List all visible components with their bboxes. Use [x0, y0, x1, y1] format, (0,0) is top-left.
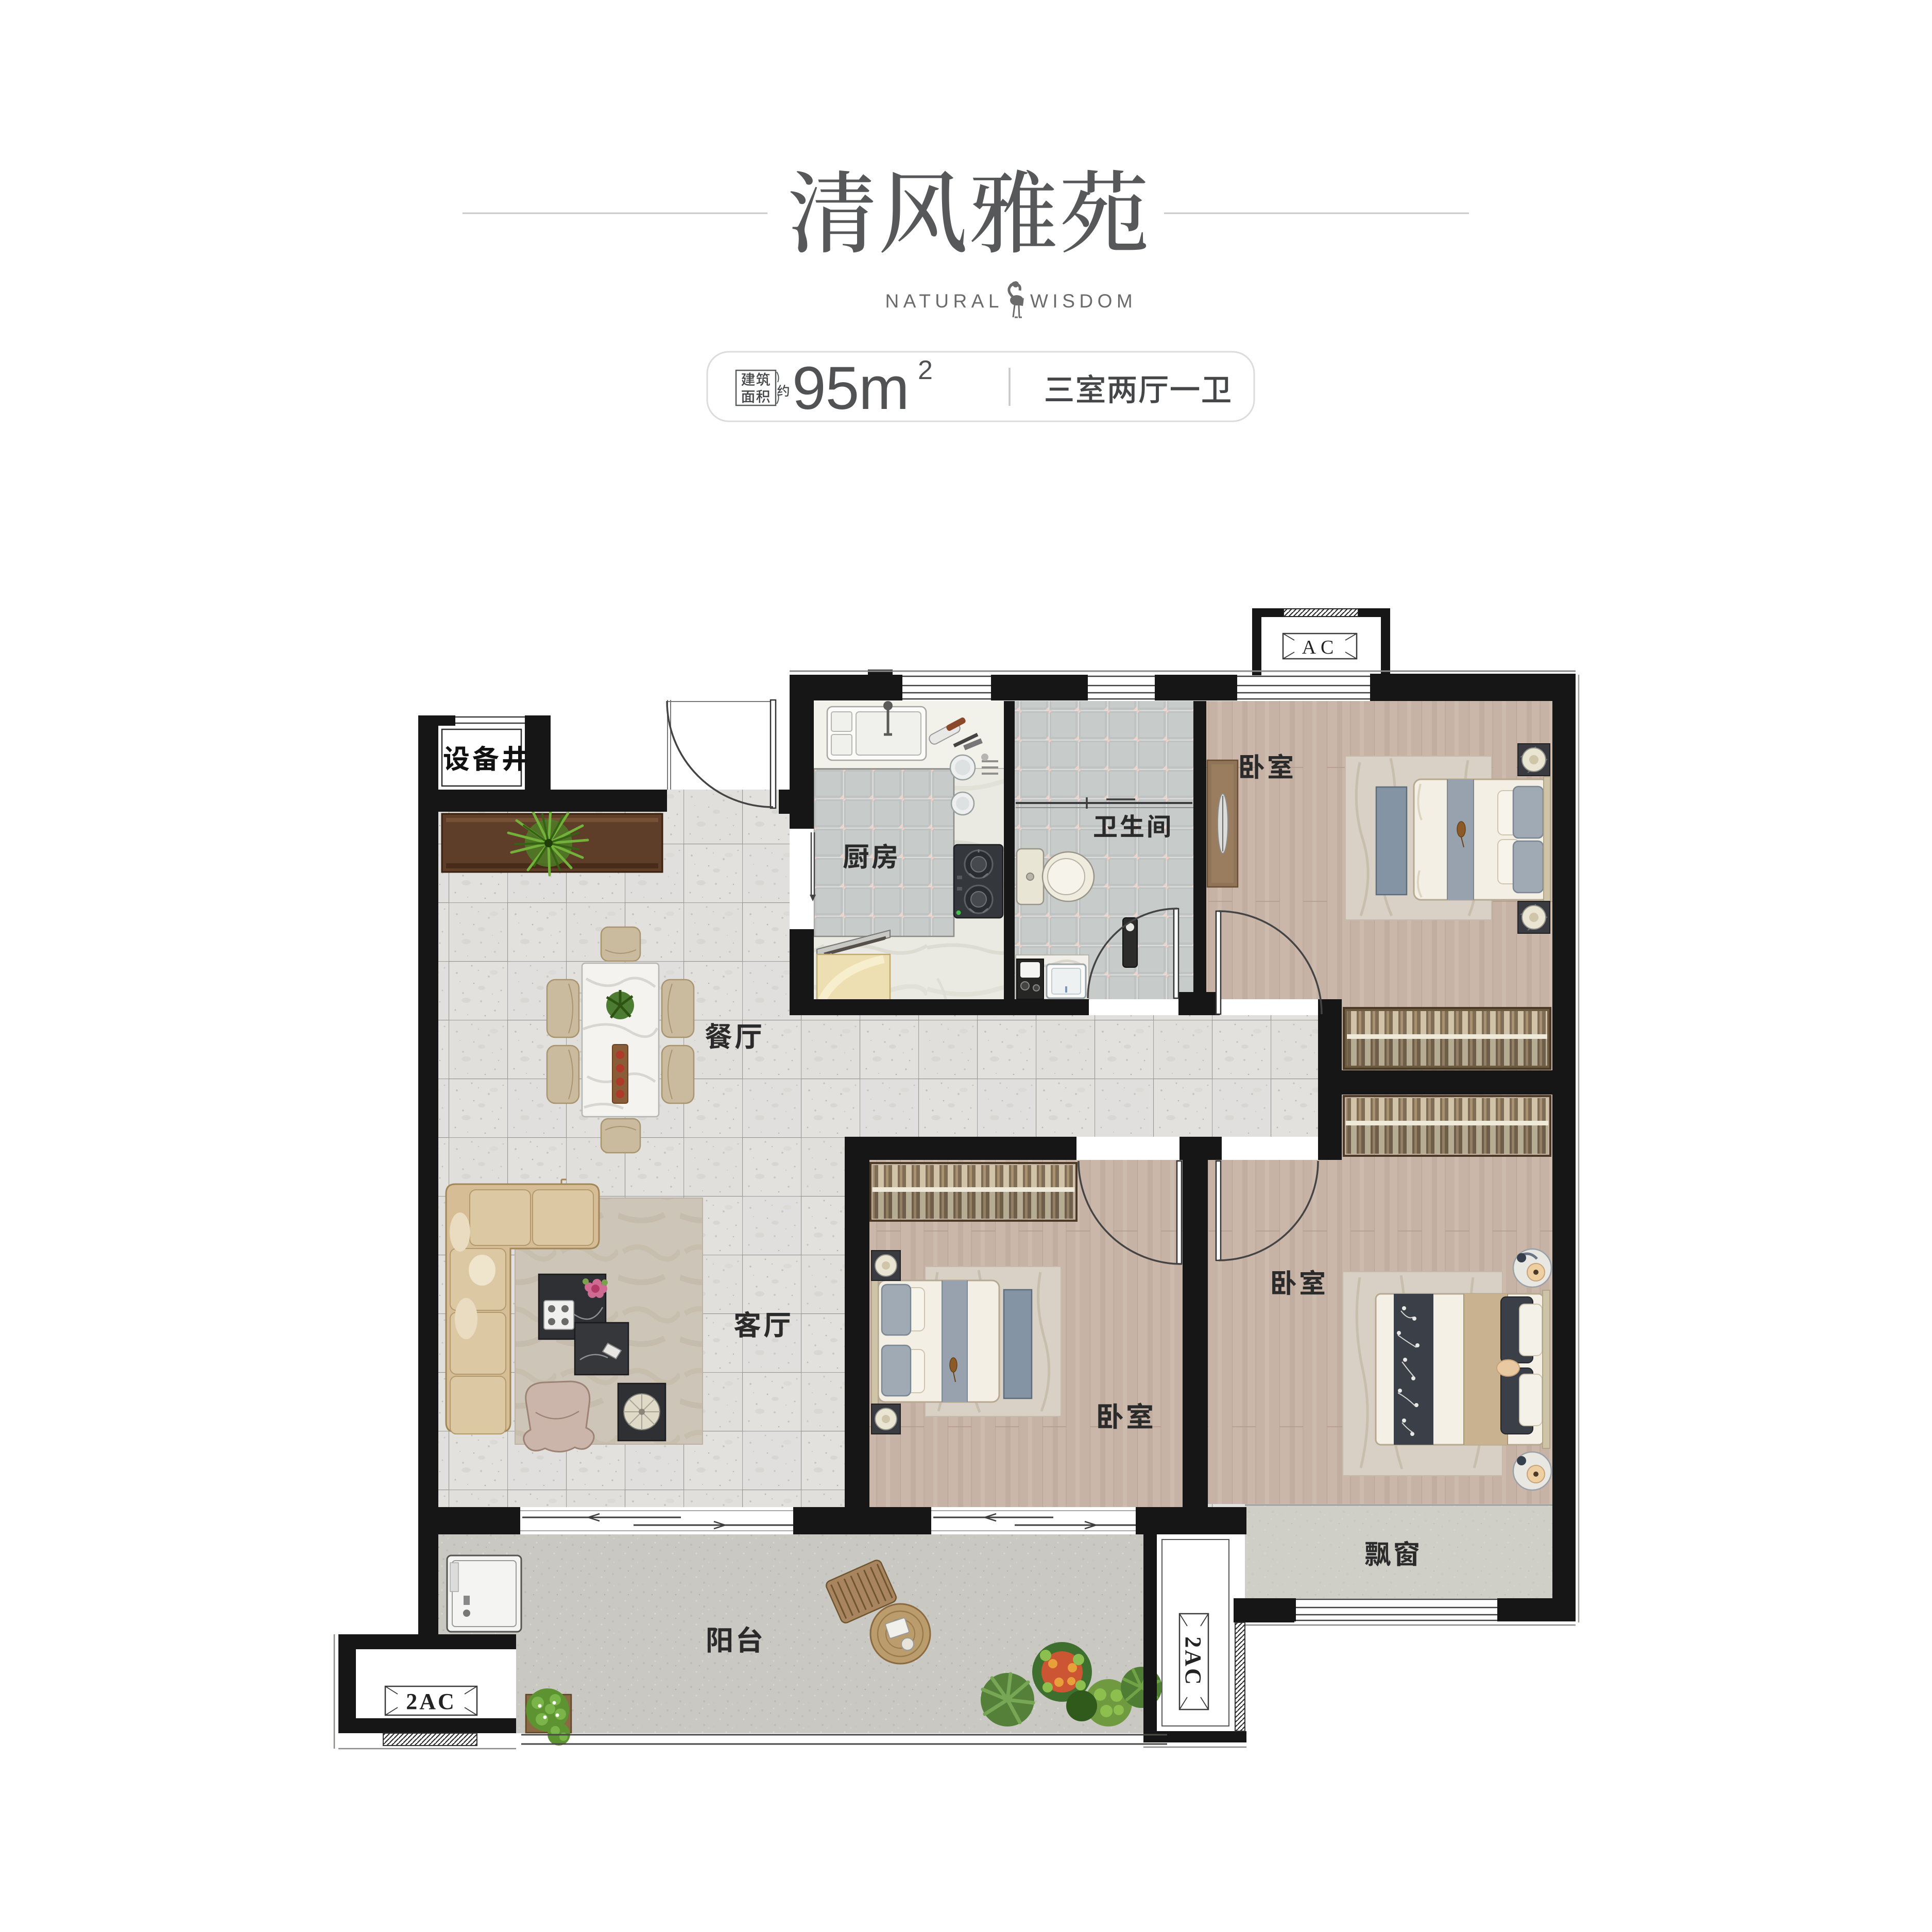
svg-text:2AC: 2AC [1181, 1636, 1206, 1687]
svg-text:AC: AC [1302, 637, 1339, 658]
svg-text:2AC: 2AC [406, 1689, 456, 1714]
svg-text:95m: 95m [792, 354, 909, 422]
svg-text:WISDOM: WISDOM [1030, 290, 1137, 312]
svg-text:NATURAL: NATURAL [885, 290, 1003, 312]
svg-text:2: 2 [918, 355, 933, 385]
